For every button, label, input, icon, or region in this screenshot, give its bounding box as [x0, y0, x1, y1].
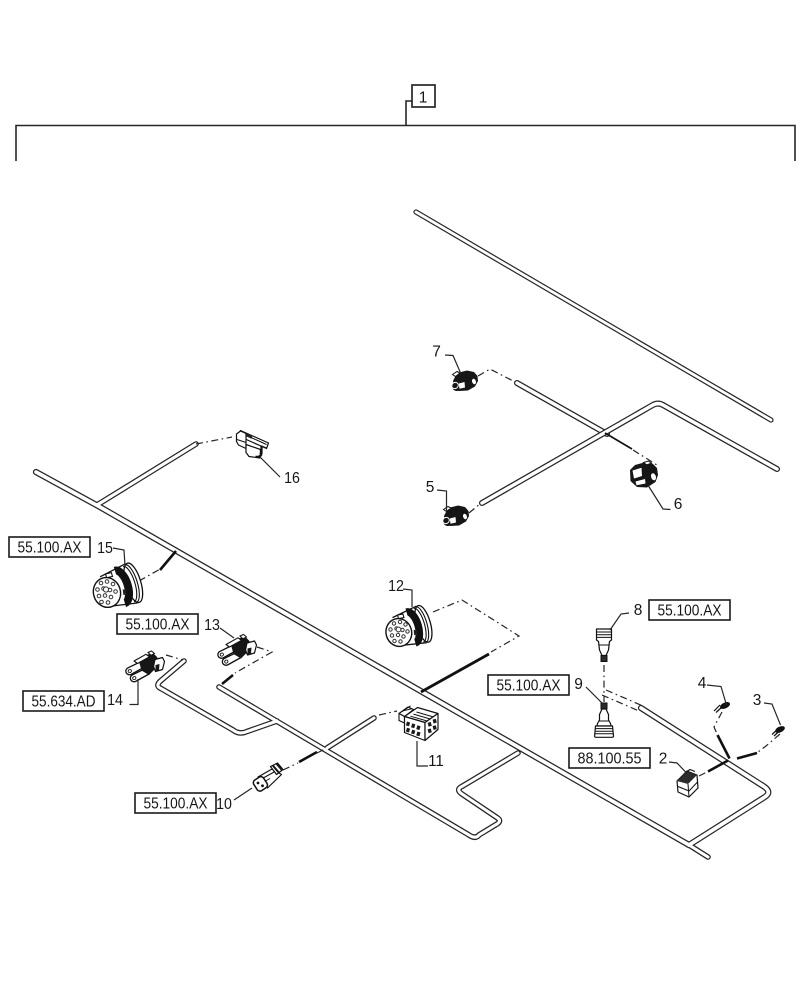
svg-text:55.100.AX: 55.100.AX	[658, 603, 722, 620]
svg-text:55.100.AX: 55.100.AX	[18, 540, 82, 557]
svg-text:11: 11	[428, 753, 444, 770]
svg-text:2: 2	[659, 751, 668, 768]
svg-text:55.100.AX: 55.100.AX	[144, 796, 208, 813]
svg-text:14: 14	[107, 692, 123, 709]
svg-text:55.100.AX: 55.100.AX	[126, 617, 190, 634]
svg-text:4: 4	[698, 675, 707, 692]
svg-text:10: 10	[216, 796, 232, 813]
svg-text:55.634.AD: 55.634.AD	[32, 694, 96, 711]
svg-text:16: 16	[284, 470, 300, 487]
svg-text:7: 7	[432, 344, 441, 361]
svg-text:12: 12	[388, 578, 404, 595]
svg-text:3: 3	[753, 692, 762, 709]
svg-text:13: 13	[204, 617, 220, 634]
svg-text:1: 1	[419, 90, 428, 107]
svg-text:55.100.AX: 55.100.AX	[497, 678, 561, 695]
svg-text:9: 9	[574, 676, 583, 693]
svg-text:6: 6	[674, 496, 683, 513]
svg-text:88.100.55: 88.100.55	[578, 751, 642, 768]
svg-text:8: 8	[634, 602, 643, 619]
svg-text:5: 5	[426, 479, 435, 496]
svg-text:15: 15	[97, 540, 113, 557]
